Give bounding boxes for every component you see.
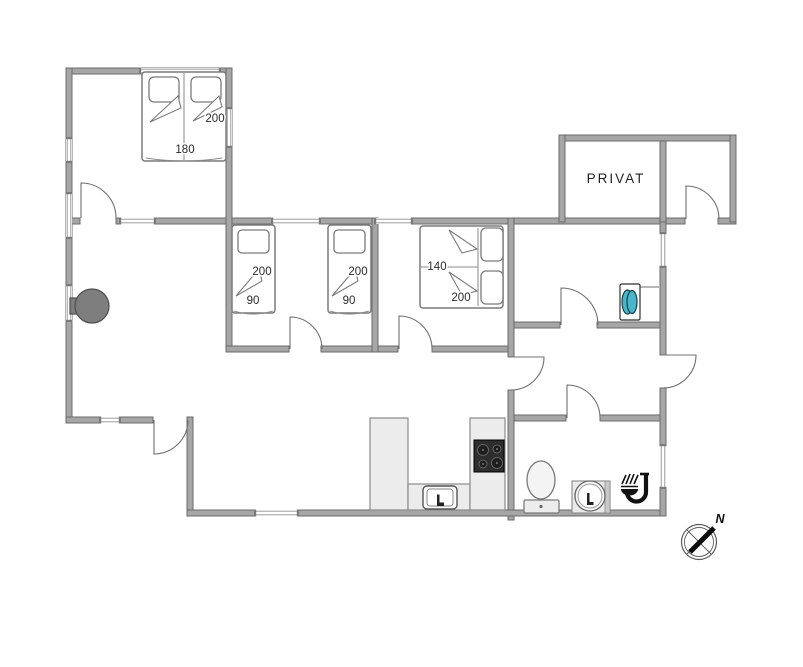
window-symbol — [660, 232, 667, 268]
wall-segment — [412, 218, 508, 224]
wall-segment — [600, 415, 660, 421]
kitchen-tall-unit — [370, 418, 408, 510]
wall-segment — [559, 135, 736, 141]
wall-segment — [660, 388, 666, 445]
wall-segment — [155, 218, 226, 224]
wall-segment — [432, 346, 514, 352]
door-swing — [567, 385, 600, 418]
door-swing — [154, 420, 188, 454]
private-room-label: PRIVAT — [587, 171, 646, 186]
wall-segment — [372, 218, 378, 352]
wall-segment — [660, 222, 666, 233]
wall-segment — [514, 218, 660, 224]
wall-segment — [120, 417, 153, 423]
pillow — [481, 228, 503, 261]
kitchen-sink — [423, 486, 457, 509]
small-double-length-label: 200 — [451, 292, 470, 304]
wall-segment — [232, 218, 272, 224]
washer-drum — [622, 290, 637, 314]
wall-segment — [187, 417, 193, 516]
toilet — [524, 461, 559, 513]
wall-segment — [187, 510, 255, 516]
window-symbol — [66, 137, 73, 163]
wall-segment — [730, 135, 736, 222]
wall-segment — [66, 417, 100, 423]
master-bed-length-label: 200 — [205, 113, 224, 125]
pillow — [481, 271, 503, 304]
floorplan-drawing: N 200 180 200 90 200 90 140 200 PRIVAT — [0, 0, 803, 667]
window-symbol — [660, 444, 667, 489]
floorplan-canvas: N 200 180 200 90 200 90 140 200 PRIVAT — [0, 0, 803, 667]
door-swing — [399, 316, 432, 349]
pillow — [238, 230, 269, 253]
wall-segment — [226, 346, 289, 352]
compass: N — [682, 512, 726, 560]
washing-machine — [620, 284, 659, 320]
door-swing — [511, 357, 544, 390]
wall-segment — [508, 218, 514, 357]
small-double-width-label: 140 — [427, 261, 446, 273]
wall-segment — [66, 68, 72, 423]
wall-segment — [559, 135, 565, 222]
single-bed-b-length-label: 200 — [348, 266, 367, 278]
wall-segment — [514, 415, 566, 421]
door-swing — [81, 183, 116, 218]
door-swing — [290, 317, 322, 349]
wall-segment — [660, 135, 666, 222]
single-bed-a-width-label: 90 — [247, 295, 260, 307]
window-symbol — [99, 417, 121, 424]
compass-north-label: N — [715, 512, 725, 526]
window-symbol — [254, 510, 299, 517]
wall-segment — [378, 346, 398, 352]
window-symbol — [271, 218, 321, 225]
cooktop — [474, 440, 504, 472]
kitchen — [370, 418, 505, 510]
pillow — [334, 230, 365, 253]
wood-stove — [70, 289, 109, 323]
door-swing — [686, 186, 719, 219]
pillow — [149, 77, 179, 102]
wall-segment — [508, 390, 514, 520]
window-symbol — [119, 218, 156, 225]
shower-icon — [621, 473, 649, 502]
wall-segment — [320, 218, 375, 224]
wall-segment — [514, 322, 560, 328]
washbasin — [572, 481, 610, 513]
single-bed-b-width-label: 90 — [343, 295, 356, 307]
master-bed-width-label: 180 — [175, 144, 194, 156]
wall-segment — [321, 346, 372, 352]
wall-segment — [660, 488, 666, 516]
door-swing — [663, 355, 696, 388]
wall-segment — [666, 218, 685, 224]
door-swing — [561, 288, 598, 325]
wall-segment — [660, 267, 666, 355]
window-symbol — [374, 218, 413, 225]
bathroom — [524, 461, 649, 513]
single-bed-a-length-label: 200 — [252, 266, 271, 278]
wall-segment — [597, 322, 660, 328]
window-symbol — [66, 192, 73, 239]
